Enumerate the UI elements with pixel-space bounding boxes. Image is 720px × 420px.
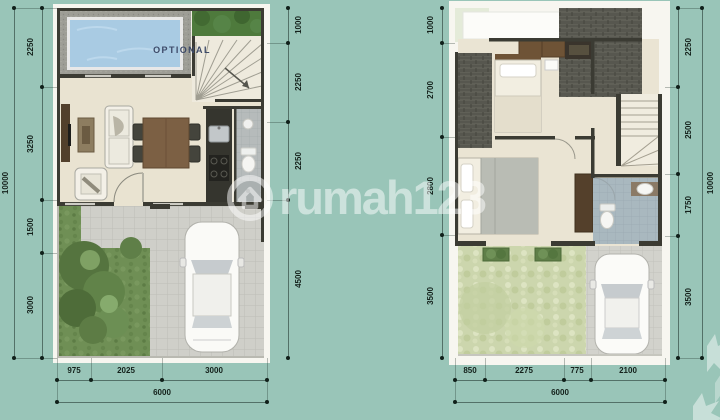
dim-tick xyxy=(12,356,16,360)
dim-label-f2-right-1: 2500 xyxy=(684,113,694,147)
dim-tick xyxy=(286,356,290,360)
dim-ext xyxy=(14,358,57,359)
bathroom2 xyxy=(593,178,659,244)
dim-label-f2-left-3: 3500 xyxy=(426,279,436,313)
dim-label-f2-bottom-1: 2275 xyxy=(507,366,541,376)
dim-tick xyxy=(562,378,566,382)
dim-tick xyxy=(40,198,44,202)
dim-label-f1-bottom-2: 3000 xyxy=(197,366,231,376)
dim-ext xyxy=(42,87,57,88)
dim-line xyxy=(678,8,679,358)
dim-label-f2-bottom-total: 6000 xyxy=(543,388,577,398)
dim-label-f2-right-3: 3500 xyxy=(684,280,694,314)
dim-tick xyxy=(12,6,16,10)
dim-label-f2-left-0: 1000 xyxy=(426,8,436,42)
dim-line xyxy=(442,8,443,358)
car xyxy=(180,222,244,352)
dim-label-f1-bottom-total: 6000 xyxy=(145,388,179,398)
dim-label-f1-left-3: 3000 xyxy=(26,288,36,322)
dim-tick xyxy=(700,6,704,10)
dim-tick xyxy=(286,120,290,124)
dim-label-f1-left-1: 3250 xyxy=(26,127,36,161)
dim-label-f1-left-total: 10000 xyxy=(1,166,11,200)
dim-label-f2-bottom-0: 850 xyxy=(453,366,487,376)
dim-label-f1-right-3: 4500 xyxy=(294,262,304,296)
dim-tick xyxy=(286,198,290,202)
kitchen-counter xyxy=(206,109,232,202)
floorplan-level-2 xyxy=(455,8,665,358)
dim-tick xyxy=(286,6,290,10)
dim-label-f2-right-total: 10000 xyxy=(706,166,716,200)
hedge xyxy=(192,8,264,36)
dim-tick xyxy=(589,378,593,382)
armchair xyxy=(75,168,107,200)
dim-tick xyxy=(55,378,59,382)
dim-ext xyxy=(678,8,702,9)
dim-line xyxy=(42,8,43,358)
dim-label-f2-right-0: 2250 xyxy=(684,30,694,64)
dim-tick xyxy=(40,85,44,89)
dim-label-f2-right-2: 1750 xyxy=(684,188,694,222)
bathroom xyxy=(236,109,261,202)
dim-label-f1-right-2: 2250 xyxy=(294,144,304,178)
dim-tick xyxy=(676,85,680,89)
dim-tick xyxy=(265,378,269,382)
dim-ext xyxy=(42,200,57,201)
dim-label-f1-bottom-0: 975 xyxy=(57,366,91,376)
dim-tick xyxy=(440,135,444,139)
dim-tick xyxy=(40,251,44,255)
dim-tick xyxy=(160,378,164,382)
dim-tick xyxy=(40,6,44,10)
dim-line xyxy=(455,402,665,403)
dim-tick xyxy=(55,400,59,404)
dim-tick xyxy=(483,378,487,382)
dim-tick xyxy=(265,400,269,404)
side-table xyxy=(78,118,94,152)
dim-tick xyxy=(676,172,680,176)
dim-tick xyxy=(440,41,444,45)
floorplan-image: OPTIONAL xyxy=(0,0,720,420)
dim-ext xyxy=(267,43,288,44)
dim-tick xyxy=(286,41,290,45)
stairs2 xyxy=(616,94,659,166)
dim-label-f1-left-0: 2250 xyxy=(26,30,36,64)
dim-tick xyxy=(440,6,444,10)
dim-line xyxy=(14,8,15,358)
dim-ext xyxy=(14,8,57,9)
dim-tick xyxy=(453,400,457,404)
background-foliage xyxy=(645,328,720,420)
dim-label-f1-bottom-1: 2025 xyxy=(109,366,143,376)
pool-optional-label: OPTIONAL xyxy=(125,45,239,55)
dim-tick xyxy=(40,356,44,360)
dim-label-f2-left-2: 2800 xyxy=(426,169,436,203)
dim-line xyxy=(702,8,703,358)
dim-label-f1-left-2: 1500 xyxy=(26,210,36,244)
dim-label-f1-right-0: 1000 xyxy=(294,8,304,42)
dim-line xyxy=(288,8,289,358)
dim-tick xyxy=(440,233,444,237)
dim-label-f2-bottom-3: 2100 xyxy=(611,366,645,376)
sofa xyxy=(105,106,133,168)
dim-tick xyxy=(676,234,680,238)
dim-tick xyxy=(440,356,444,360)
floorplan-level-1 xyxy=(57,8,267,358)
dim-tick xyxy=(676,6,680,10)
dim-label-f2-left-1: 2700 xyxy=(426,73,436,107)
dim-label-f2-bottom-2: 775 xyxy=(560,366,594,376)
dim-ext xyxy=(42,253,57,254)
dim-ext xyxy=(162,358,163,380)
dim-tick xyxy=(453,378,457,382)
dim-label-f1-right-1: 2250 xyxy=(294,65,304,99)
dim-ext xyxy=(91,358,92,380)
dim-ext xyxy=(267,200,288,201)
dim-ext xyxy=(267,122,288,123)
dim-tick xyxy=(89,378,93,382)
roof-shingles-left xyxy=(455,53,492,148)
tv-console xyxy=(61,104,71,162)
dim-line xyxy=(57,402,267,403)
